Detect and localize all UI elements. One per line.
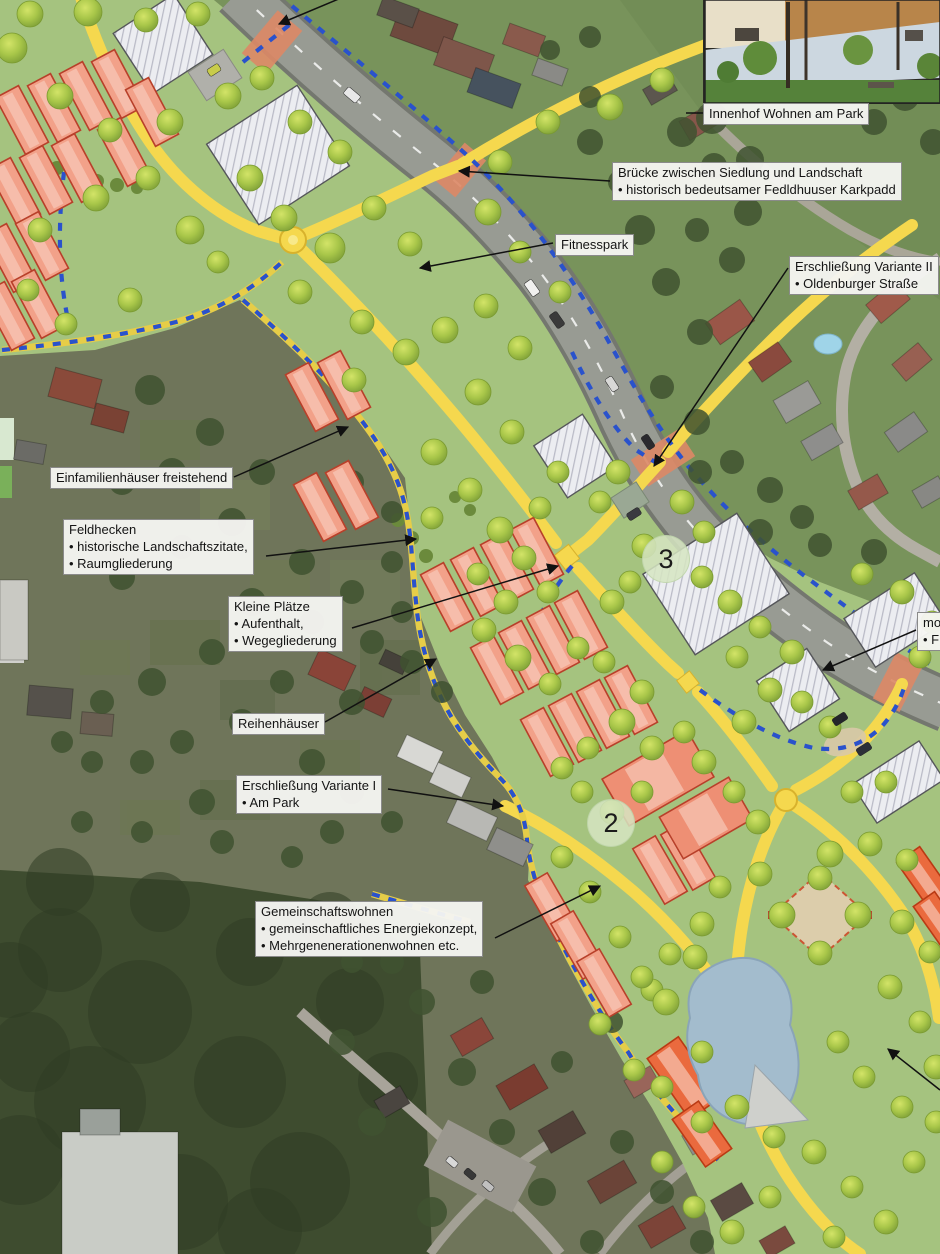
plan-tree [802,1140,826,1164]
aerial-tree [551,1051,573,1073]
plan-tree [28,218,52,242]
aerial-roof [62,1132,178,1254]
plan-tree [474,294,498,318]
aerial-tree [340,580,364,604]
plan-tree [315,233,345,263]
aerial-tree [381,551,403,573]
plan-tree [328,140,352,164]
plan-tree [890,580,914,604]
plan-tree [875,771,897,793]
plan-tree [465,379,491,405]
plan-tree [537,581,559,603]
aerial-tree [360,630,384,654]
plan-tree [362,196,386,220]
label-truncated-right: mo • F [917,612,940,651]
aerial-tree [861,539,887,565]
plan-tree [683,1196,705,1218]
plan-tree [631,966,653,988]
plan-tree [134,8,158,32]
plan-tree [207,251,229,273]
plan-tree [288,110,312,134]
label-text: Fitnesspark [561,236,628,253]
aerial-tree [448,1058,476,1086]
aerial-tree [528,1178,556,1206]
label-text: Gemeinschaftswohnen [261,903,477,920]
plan-tree [500,420,524,444]
garden-pool [814,334,842,354]
plan-tree [0,33,27,63]
plan-tree [630,680,654,704]
hedge-bush [110,178,124,192]
aerial-roof [80,1109,120,1135]
plan-tree [600,590,624,614]
aerial-roof [80,712,114,737]
plan-tree [817,841,843,867]
plan-tree [577,737,599,759]
plan-tree [393,339,419,365]
plan-tree [17,1,43,27]
plan-tree [512,546,536,570]
plan-tree [342,368,366,392]
aerial-tree [71,811,93,833]
aerial-tree [667,117,697,147]
plan-tree [903,1151,925,1173]
aerial-tree [51,731,73,753]
aerial-tree [381,501,403,523]
aerial-tree [138,668,166,696]
plan-tree [176,216,204,244]
plan-tree [651,1076,673,1098]
plan-tree [874,1210,898,1234]
aerial-tree [489,1119,515,1145]
plan-tree [488,150,512,174]
aerial-tree [189,789,215,815]
area-marker-2: 2 [587,799,635,847]
aerial-tree [135,375,165,405]
label-text: Einfamilienhäuser freistehend [56,469,227,486]
aerial-tree [579,26,601,48]
aerial-tree [470,970,494,994]
aerial-tree [131,821,153,843]
plan-tree [593,651,615,673]
aerial-tree [281,846,303,868]
plan-tree [823,1226,845,1248]
label-text: • historische Landschaftszitate, [69,538,248,555]
plan-tree [579,881,601,903]
label-text: • Mehrgenenerationenwohnen etc. [261,937,477,954]
label-kleine-plaetze: Kleine Plätze • Aufenthalt, • Wegegliede… [228,596,343,652]
plan-tree [650,68,674,92]
plan-tree [780,640,804,664]
plan-tree [851,563,873,585]
aerial-tree [90,690,114,714]
label-text: Erschließung Variante I [242,777,376,794]
plan-tree [589,491,611,513]
aerial-tree [358,1108,386,1136]
plan-tree [350,310,374,334]
plan-tree [74,0,102,26]
label-fitnesspark: Fitnesspark [555,234,634,256]
plan-tree [749,616,771,638]
label-text: • Wegegliederung [234,632,337,649]
plan-tree [653,989,679,1015]
plan-tree [529,497,551,519]
aerial-tree [249,459,275,485]
plan-tree [475,199,501,225]
aerial-tree [431,681,453,703]
plan-tree [398,232,422,256]
aerial-roof [27,685,73,719]
plan-tree [250,66,274,90]
plan-tree [691,1111,713,1133]
plan-tree [606,460,630,484]
plan-tree [659,943,681,965]
plan-tree [919,941,940,963]
label-text: • historisch bedeutsamer Fedldhuuser Kar… [618,181,896,198]
plan-tree [589,1013,611,1035]
plan-tree [609,926,631,948]
plan-tree [691,1041,713,1063]
aerial-tree [130,750,154,774]
label-text: • F [923,631,940,648]
plan-tree [683,945,707,969]
label-reihenhaeuser: Reihenhäuser [232,713,325,735]
plan-tree [791,691,813,713]
plan-tree [692,750,716,774]
label-text: Innenhof Wohnen am Park [709,105,863,122]
aerial-tree [808,533,832,557]
aerial-tree [320,820,344,844]
aerial-tree [720,450,744,474]
plan-tree [288,280,312,304]
aerial-tree [199,639,225,665]
plan-tree [551,846,573,868]
aerial-tree [540,40,560,60]
plan-tree [748,862,772,886]
plan-tree [808,866,832,890]
plan-tree [858,832,882,856]
plan-tree [725,1095,749,1119]
aerial-tree [81,751,103,773]
plan-tree [896,849,918,871]
plan-tree [693,521,715,543]
plan-tree [759,1186,781,1208]
plan-tree [536,110,560,134]
plan-tree [769,902,795,928]
plan-tree [237,165,263,191]
aerial-roof [0,580,28,660]
aerial-tree [734,198,762,226]
aerial-tree [687,319,713,345]
plan-tree [718,590,742,614]
label-innenhof: Innenhof Wohnen am Park [703,103,869,125]
label-text: mo [923,614,940,631]
plan-tree [571,781,593,803]
aerial-tree [577,129,603,155]
area-marker-3-number: 3 [658,544,673,575]
aerial-tree [650,1180,674,1204]
plan-tree [651,1151,673,1173]
hedge-bush [419,549,433,563]
label-text: Feldhecken [69,521,248,538]
label-gemeinschaftswohnen: Gemeinschaftswohnen • gemeinschaftliches… [255,901,483,957]
plan-tree [723,781,745,803]
label-feldhecken: Feldhecken • historische Landschaftszita… [63,519,254,575]
aerial-tree [580,1230,604,1254]
label-erschliessung-variante-1: Erschließung Variante I • Am Park [236,775,382,814]
label-text: Brücke zwischen Siedlung und Landschaft [618,164,896,181]
plan-tree [494,590,518,614]
label-text: • Oldenburger Straße [795,275,933,292]
plan-tree [118,288,142,312]
aerial-tree [652,268,680,296]
plan-tree [83,185,109,211]
aerial-tree [685,218,709,242]
plan-tree [487,517,513,543]
plan-tree [539,673,561,695]
plan-tree [732,710,756,734]
plan-tree [186,2,210,26]
plan-tree [567,637,589,659]
forest-blob [26,848,94,916]
plan-tree [673,721,695,743]
aerial-tree [417,1197,447,1227]
plan-tree [458,478,482,502]
plan-tree [17,279,39,301]
plan-tree [841,1176,863,1198]
aerial-tree [196,418,224,446]
plan-tree [909,1011,931,1033]
label-text: Reihenhäuser [238,715,319,732]
label-text: • Aufenthalt, [234,615,337,632]
aerial-tree [650,375,674,399]
aerial-tree [170,730,194,754]
aerial-tree [270,670,294,694]
plan-tree [472,618,496,642]
plan-tree [508,336,532,360]
aerial-tree [381,811,403,833]
area-marker-2-number: 2 [603,808,618,839]
plan-tree [98,118,122,142]
aerial-tree [210,830,234,854]
plan-tree [841,781,863,803]
plan-tree [509,241,531,263]
plan-tree [690,912,714,936]
site-plan-map: 3 2 Innenhof Wohnen am Park Brücke zwisc… [0,0,940,1254]
plan-tree [631,781,653,803]
plan-tree [691,566,713,588]
plan-tree [157,109,183,135]
forest-blob [316,968,384,1036]
plan-tree [551,757,573,779]
plan-tree [827,1031,849,1053]
park-junction [775,789,797,811]
aerial-tree [688,460,712,484]
plan-tree [726,646,748,668]
inset-photo [703,0,940,104]
plan-tree [467,563,489,585]
plan-tree [878,975,902,999]
aerial-tree [329,1029,355,1055]
aerial-tree [400,650,424,674]
plan-tree [746,810,770,834]
plan-tree [758,678,782,702]
aerial-tree [690,1230,714,1254]
plan-tree [55,313,77,335]
plan-tree [547,461,569,483]
plan-tree [720,1220,744,1244]
aerial-tree [409,989,435,1015]
aerial-tree [684,409,710,435]
hedge-bush [464,504,476,516]
plan-tree [271,205,297,231]
label-bruecke: Brücke zwischen Siedlung und Landschaft … [612,162,902,201]
plan-tree [549,281,571,303]
plan-tree [432,317,458,343]
plan-tree [505,645,531,671]
aerial-tree [391,601,413,623]
plan-tree [47,83,73,109]
aerial-tree [610,1130,634,1154]
label-text: • Raumgliederung [69,555,248,572]
plan-tree [808,941,832,965]
label-text: • Am Park [242,794,376,811]
aerial-tree [790,505,814,529]
plan-tree [597,94,623,120]
label-text: • gemeinschaftliches Energiekonzept, [261,920,477,937]
aerial-tree [299,749,325,775]
plan-tree [709,876,731,898]
label-text: Erschließung Variante II [795,258,933,275]
aerial-tree [719,247,745,273]
plan-tree [215,83,241,109]
label-text: Kleine Plätze [234,598,337,615]
forest-blob [194,1036,286,1128]
plan-tree [891,1096,913,1118]
area-marker-3: 3 [642,535,690,583]
label-einfamilienhaeuser: Einfamilienhäuser freistehend [50,467,233,489]
plan-tree [421,507,443,529]
plan-tree [853,1066,875,1088]
aerial-tree [757,477,783,503]
label-erschliessung-variante-2: Erschließung Variante II • Oldenburger S… [789,256,939,295]
plan-tree [136,166,160,190]
plan-tree [619,571,641,593]
plan-tree [763,1126,785,1148]
plan-tree [609,709,635,735]
forest-blob [130,872,190,932]
plan-tree [640,736,664,760]
plan-tree [890,910,914,934]
plan-tree [421,439,447,465]
plan-tree [845,902,871,928]
plan-tree [670,490,694,514]
plan-tree [623,1059,645,1081]
